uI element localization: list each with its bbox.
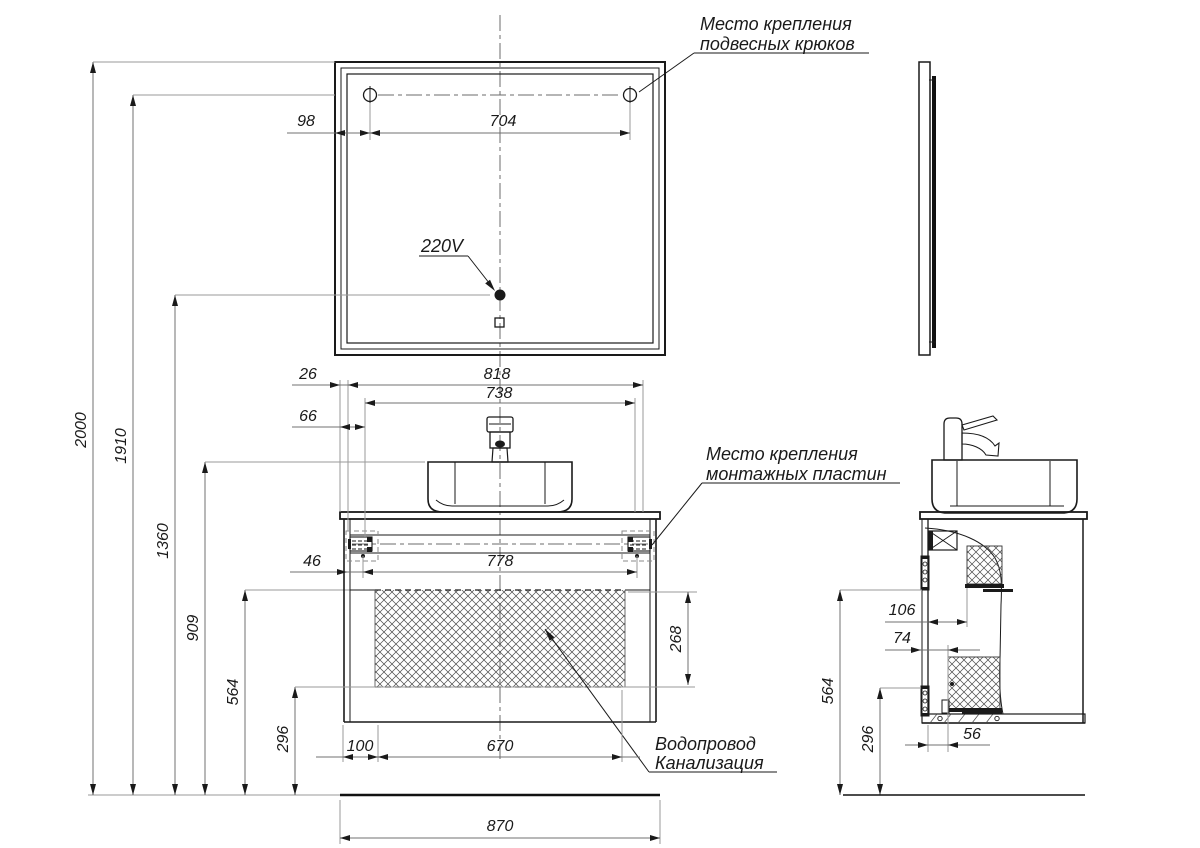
plates-note-line2: монтажных пластин (706, 464, 887, 484)
side-view-mirror (919, 62, 936, 355)
power-outlet-dot (495, 290, 506, 301)
vessel-sink-side (932, 460, 1077, 513)
dim-870-label: 870 (487, 818, 514, 835)
dim-909-label: 909 (185, 615, 202, 642)
hooks-note-line1: Место крепления (700, 14, 852, 34)
front-view-vanity: Место крепления монтажных пластин Водопр… (290, 366, 900, 844)
dim-100-label: 100 (347, 738, 374, 755)
drain-box-side (942, 657, 1002, 715)
dim-46-label: 46 (303, 553, 321, 570)
faucet-side (944, 416, 999, 460)
dim-side-vertical: 564 296 (820, 590, 922, 795)
hooks-note-line2: подвесных крюков (700, 34, 855, 54)
dim-98-label: 98 (297, 113, 315, 130)
dim-778-label: 778 (487, 553, 514, 570)
dim-738-label: 738 (486, 385, 513, 402)
dim-296-label: 296 (275, 726, 292, 754)
dim-countertop-width: 870 (340, 800, 660, 844)
dim-2000-label: 2000 (73, 412, 90, 449)
mounting-plate-side (929, 531, 957, 550)
dim-564-label: 564 (225, 679, 242, 706)
hooks-note-leader (639, 53, 869, 92)
dim-1360-label: 1360 (155, 523, 172, 559)
dim-hooks: 98 704 (287, 103, 630, 140)
dim-26-label: 26 (298, 366, 317, 383)
drawing-canvas: Место крепления подвесных крюков 98 704 … (0, 0, 1200, 848)
water-label: Водопровод (655, 734, 756, 754)
dim-704-label: 704 (490, 113, 517, 130)
dim-106-label: 106 (889, 602, 916, 619)
plates-note-leader (652, 483, 900, 545)
water-supply-box-side (965, 546, 1013, 592)
drawer-hatch-front (375, 590, 625, 687)
power-outlet: 220V (419, 236, 506, 327)
dim-drain-front: 100 670 (316, 690, 640, 762)
front-view-mirror: Место крепления подвесных крюков 98 704 … (287, 14, 869, 355)
dim-56-label: 56 (963, 726, 981, 743)
dim-670-label: 670 (487, 738, 514, 755)
voltage-label: 220V (420, 236, 465, 256)
sewer-label: Канализация (655, 753, 764, 773)
dim-drawer-height: 268 (628, 592, 697, 685)
dim-plates: 46 778 (290, 553, 639, 578)
dim-66-label: 66 (299, 408, 317, 425)
dim-side-296-label: 296 (860, 726, 877, 754)
hanging-hook-left (364, 86, 377, 104)
dim-74-label: 74 (893, 630, 911, 647)
technical-drawing-page: Место крепления подвесных крюков 98 704 … (0, 0, 1200, 848)
dim-818-label: 818 (484, 366, 511, 383)
dim-1910-label: 1910 (113, 428, 130, 464)
hanging-hook-right (624, 86, 637, 104)
dim-268-label: 268 (668, 626, 685, 654)
dim-side-564-label: 564 (820, 678, 837, 705)
plates-note-line1: Место крепления (706, 444, 858, 464)
